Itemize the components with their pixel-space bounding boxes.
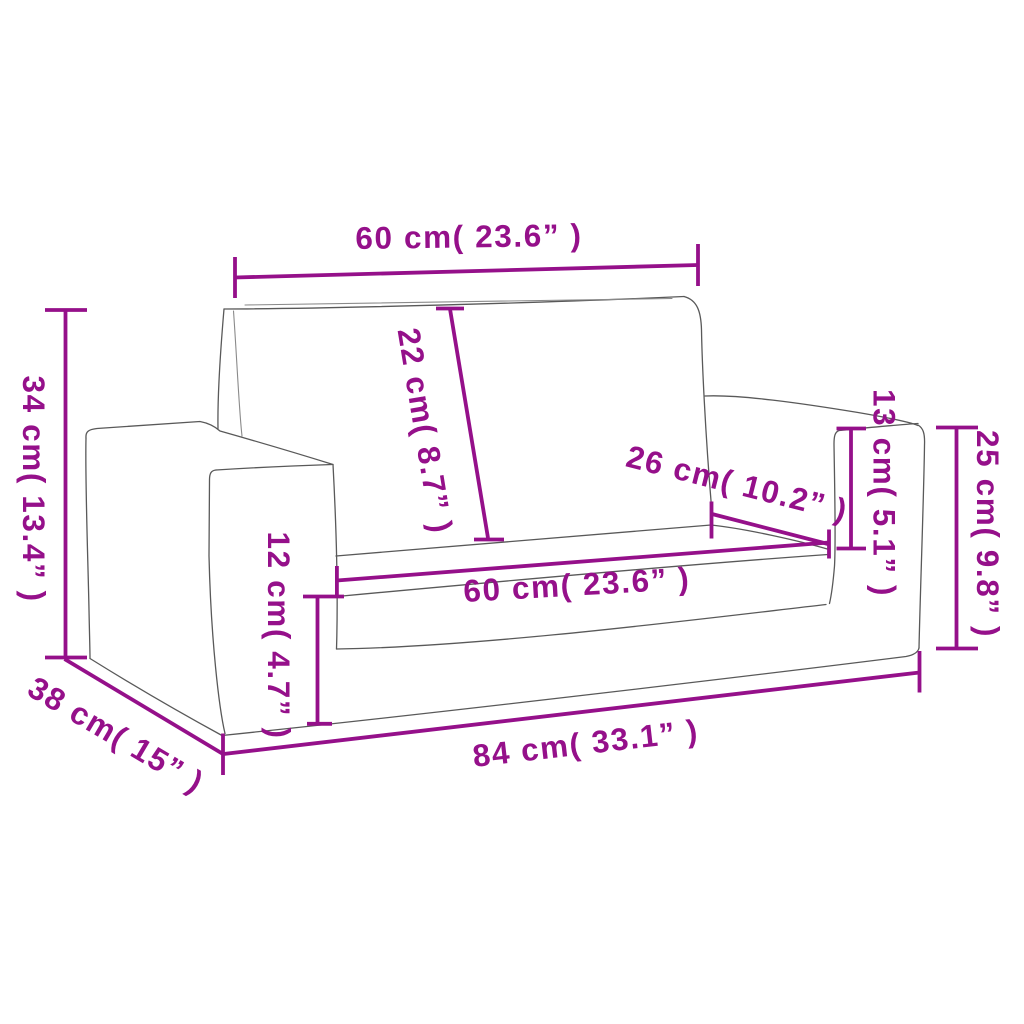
svg-text:25 cm( 9.8” ): 25 cm( 9.8” ) [970,430,1006,638]
svg-text:60 cm( 23.6” ): 60 cm( 23.6” ) [355,217,583,256]
svg-text:13 cm( 5.1” ): 13 cm( 5.1” ) [866,389,902,597]
svg-text:12 cm( 4.7” ): 12 cm( 4.7” ) [261,532,297,740]
svg-text:34 cm( 13.4” ): 34 cm( 13.4” ) [16,376,52,603]
